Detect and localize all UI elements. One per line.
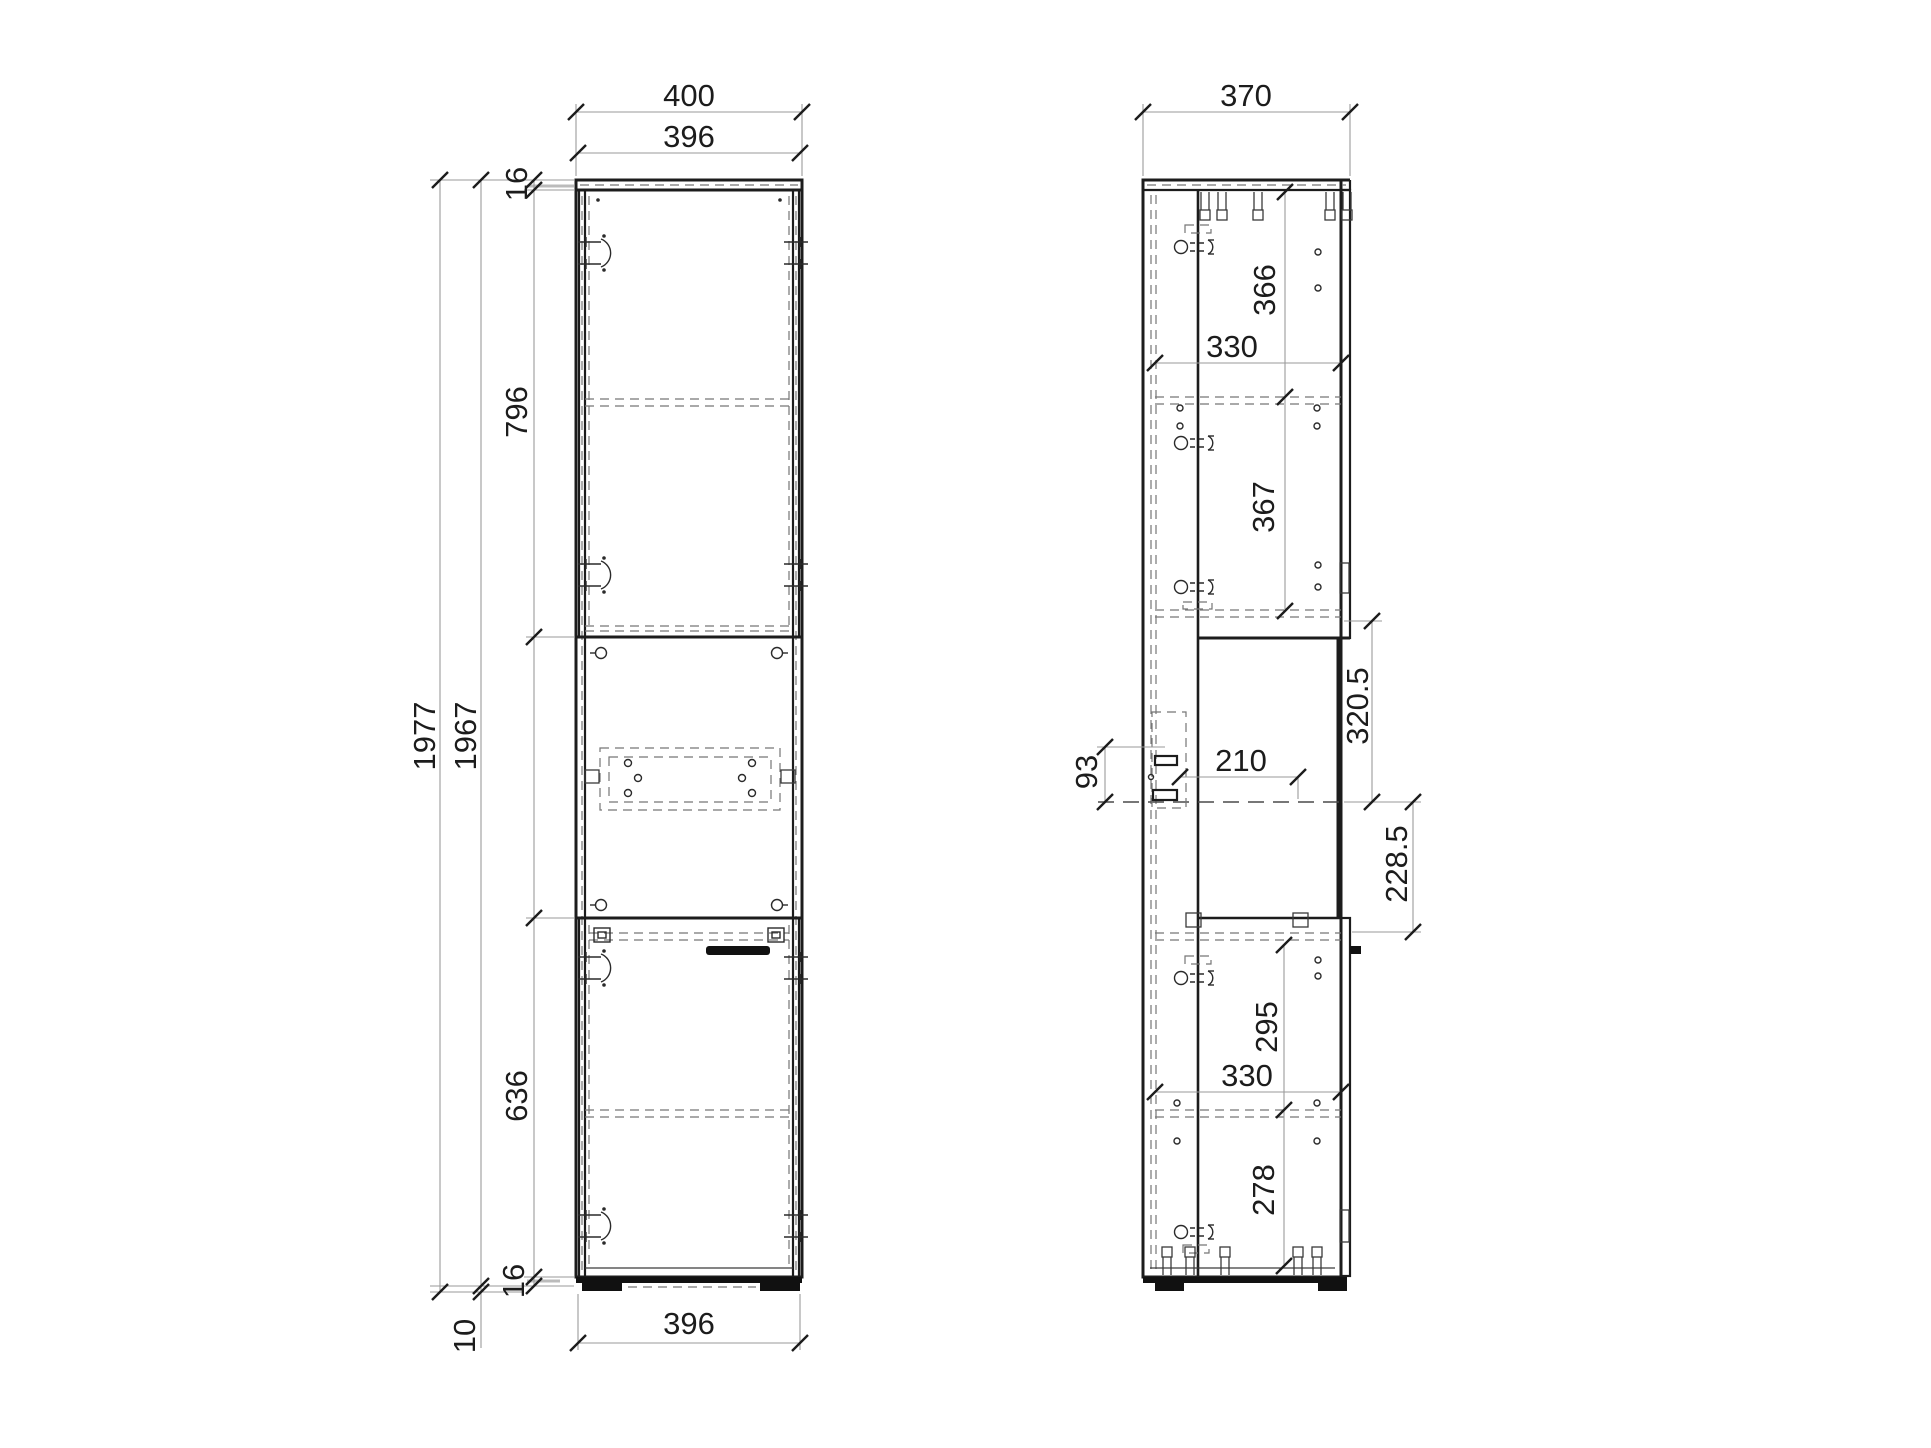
dim-side-depth-overall: 370: [1220, 78, 1272, 113]
dim-front-bottom-panel: 16: [496, 1264, 531, 1298]
dim-front-top-door: 796: [499, 386, 534, 438]
dim-side-front-gap-upper: 320.5: [1340, 667, 1375, 745]
dim-side-bottom-lower: 278: [1246, 1164, 1281, 1216]
dim-front-width-bottom: 396: [663, 1306, 715, 1341]
dim-front-width-overall: 400: [663, 78, 715, 113]
dim-side-interior-depth-bottom: 330: [1221, 1058, 1273, 1093]
dim-side-front-gap-lower: 228.5: [1379, 825, 1414, 903]
dim-front-height-carcass: 1967: [448, 702, 483, 771]
dim-front-height-overall: 1977: [407, 702, 442, 771]
dim-side-interior-depth-top: 330: [1206, 329, 1258, 364]
dim-side-top-compartment: 366: [1247, 264, 1282, 316]
dim-front-width-top: 396: [663, 119, 715, 154]
dim-side-slide-depth: 210: [1215, 743, 1267, 778]
cabinet-technical-drawing: 400 396 1977 1967 16 796 636 16 10 396: [0, 0, 1931, 1448]
dim-side-slide-offset: 93: [1069, 755, 1104, 789]
door-handle: [706, 946, 770, 955]
dim-front-top-panel: 16: [499, 167, 534, 201]
dim-front-bottom-door: 636: [499, 1070, 534, 1122]
side-door-handle: [1350, 946, 1361, 954]
side-view-dimensions: 370 366 330 367 320.5 228.5 93 210 295 3…: [1069, 78, 1421, 1274]
front-view: [576, 180, 808, 1291]
dim-side-middle-compartment: 367: [1246, 481, 1281, 533]
dim-front-feet: 10: [447, 1319, 482, 1353]
technical-drawing-canvas: 400 396 1977 1967 16 796 636 16 10 396: [0, 0, 1931, 1448]
front-view-dimensions: 400 396 1977 1967 16 796 636 16 10 396: [407, 78, 810, 1353]
dim-side-bottom-upper: 295: [1249, 1001, 1284, 1053]
